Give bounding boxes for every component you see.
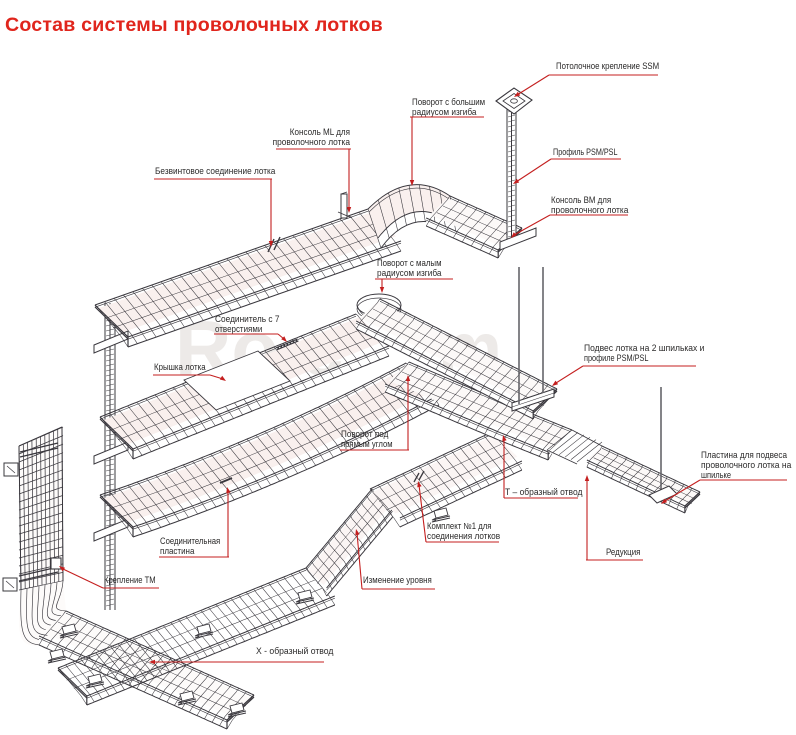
svg-text:проволочного лотка на: проволочного лотка на xyxy=(701,460,791,470)
svg-text:Консоль BM для: Консоль BM для xyxy=(551,195,611,205)
svg-text:радиусом изгиба: радиусом изгиба xyxy=(377,268,442,278)
svg-text:Крышка лотка: Крышка лотка xyxy=(154,362,206,372)
svg-text:прямым углом: прямым углом xyxy=(341,439,393,449)
svg-text:Поворот с малым: Поворот с малым xyxy=(377,258,442,268)
svg-text:Поворот под: Поворот под xyxy=(341,429,388,439)
svg-text:пластина: пластина xyxy=(160,546,194,556)
svg-text:радиусом изгиба: радиусом изгиба xyxy=(412,107,477,117)
svg-text:Редукция: Редукция xyxy=(606,547,641,557)
svg-text:Консоль ML для: Консоль ML для xyxy=(290,127,350,137)
svg-text:отверстиями: отверстиями xyxy=(215,324,262,334)
svg-text:Профиль PSM/PSL: Профиль PSM/PSL xyxy=(553,147,618,157)
svg-text:Поворот с большим: Поворот с большим xyxy=(412,97,485,107)
svg-text:Подвес лотка на 2 шпильках и: Подвес лотка на 2 шпильках и xyxy=(584,343,704,353)
svg-text:Безвинтовое соединение лотка: Безвинтовое соединение лотка xyxy=(155,166,275,176)
svg-text:соединения лотков: соединения лотков xyxy=(427,531,500,541)
svg-text:проволочного лотка: проволочного лотка xyxy=(273,137,350,147)
svg-text:проволочного лотка: проволочного лотка xyxy=(551,205,628,215)
svg-text:Соединительная: Соединительная xyxy=(160,536,220,546)
svg-text:Комплект №1 для: Комплект №1 для xyxy=(427,521,492,531)
svg-text:X - образный отвод: X - образный отвод xyxy=(256,646,333,656)
svg-text:Т – образный отвод: Т – образный отвод xyxy=(505,487,582,497)
svg-text:Потолочное крепление SSM: Потолочное крепление SSM xyxy=(556,61,659,71)
svg-text:профиле PSM/PSL: профиле PSM/PSL xyxy=(584,353,649,363)
svg-text:Пластина для подвеса: Пластина для подвеса xyxy=(701,450,787,460)
svg-text:Соединитель с 7: Соединитель с 7 xyxy=(215,314,280,324)
svg-text:Крепление ТМ: Крепление ТМ xyxy=(104,575,156,585)
svg-text:шпильке: шпильке xyxy=(701,470,731,480)
svg-text:Изменение уровня: Изменение уровня xyxy=(363,575,432,585)
